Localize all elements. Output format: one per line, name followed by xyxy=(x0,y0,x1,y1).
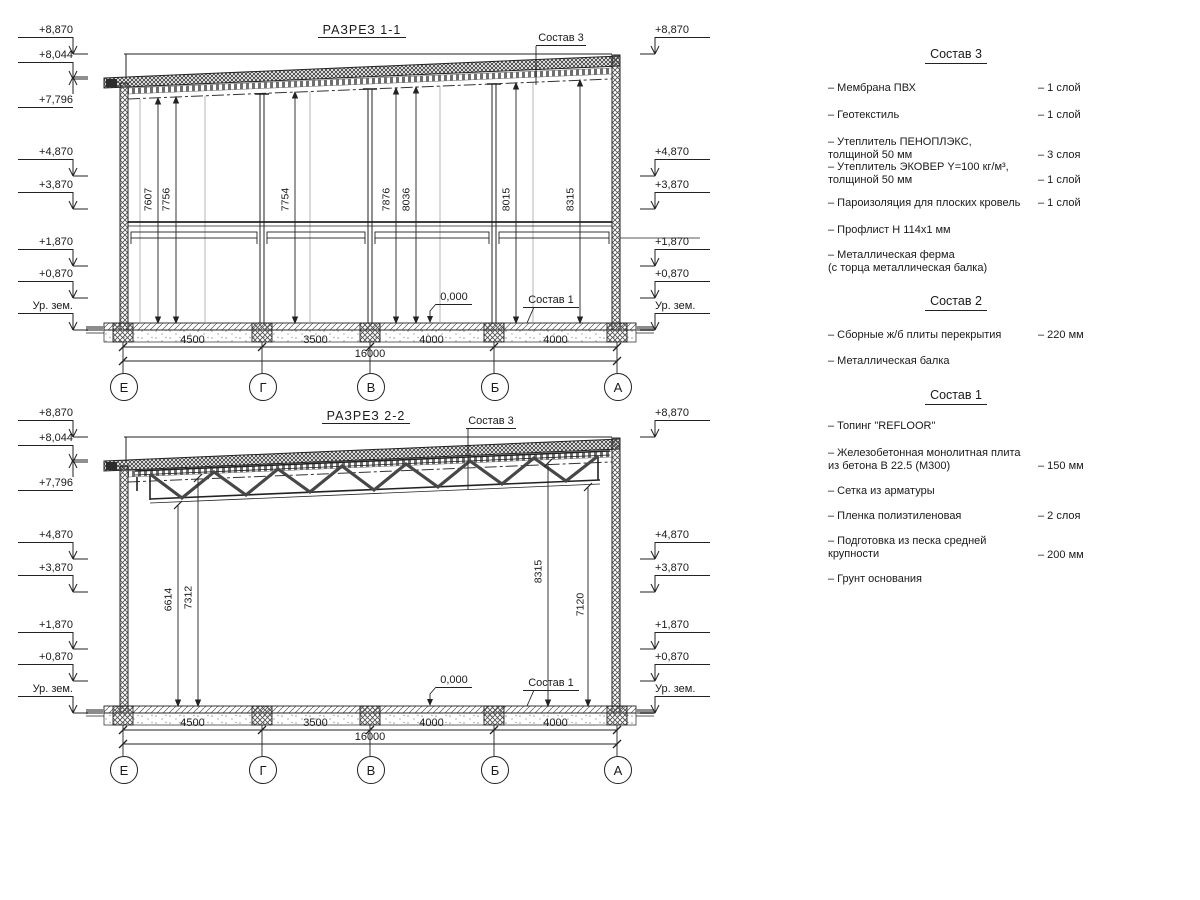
axis-letter: Е xyxy=(120,763,129,778)
elevation-mark: +3,870 xyxy=(18,562,73,576)
elevation-mark: +8,870 xyxy=(655,407,710,421)
legend-item-value: – 150 мм xyxy=(1038,460,1138,472)
elevation-mark: +8,870 xyxy=(655,24,710,38)
total-dim: 16000 xyxy=(342,731,398,743)
elevation-mark: +4,870 xyxy=(18,146,73,160)
axis-letter: Е xyxy=(120,380,129,395)
span-dim: 4500 xyxy=(165,717,220,729)
span-dim: 4000 xyxy=(528,717,583,729)
ground-level-label: Ур. зем. xyxy=(18,683,73,697)
axis-bubble-a: А xyxy=(604,373,632,401)
legend-item-value: – 200 мм xyxy=(1038,549,1138,561)
legend-item-value: – 1 слой xyxy=(1038,82,1138,94)
legend-item: – Геотекстиль xyxy=(828,109,1036,122)
legend-item-value: – 2 слоя xyxy=(1038,510,1138,522)
span-dim: 3500 xyxy=(288,334,343,346)
elevation-mark: +4,870 xyxy=(18,529,73,543)
axis-bubble-e: Е xyxy=(110,756,138,784)
legend-sostav3-title: Состав 3 xyxy=(925,47,987,64)
elevation-mark: +1,870 xyxy=(18,236,73,250)
legend-item: – Сетка из арматуры xyxy=(828,485,1036,498)
elevation-mark: +1,870 xyxy=(655,619,710,633)
legend-item: – Сборные ж/б плиты перекрытия xyxy=(828,329,1036,342)
elevation-mark: +0,870 xyxy=(18,651,73,665)
elevation-mark: +0,870 xyxy=(655,268,710,282)
axis-letter: А xyxy=(614,380,623,395)
legend-item: – Подготовка из песка средней крупности xyxy=(828,535,1036,560)
span-dim: 3500 xyxy=(288,717,343,729)
elevation-mark: +8,044 xyxy=(18,49,73,63)
elevation-mark: +1,870 xyxy=(655,236,710,250)
sostav3-leader-label-s2: Состав 3 xyxy=(466,415,516,429)
height-dim: 7120 xyxy=(575,575,588,635)
legend-item: – Металлическая ферма (с торца металличе… xyxy=(828,249,1036,274)
height-dim: 8315 xyxy=(533,542,546,602)
elevation-mark: +4,870 xyxy=(655,529,710,543)
axis-letter: Г xyxy=(259,380,266,395)
zero-level-label-s1: 0,000 xyxy=(436,291,472,305)
axis-letter: В xyxy=(367,380,376,395)
legend-item-value: – 220 мм xyxy=(1038,329,1138,341)
axis-bubble-a: А xyxy=(604,756,632,784)
sostav1-leader-label-s2: Состав 1 xyxy=(523,677,579,691)
height-dim: 7756 xyxy=(161,170,174,230)
height-dim: 7876 xyxy=(381,170,394,230)
legend-item-value: – 3 слоя xyxy=(1038,149,1138,161)
elevation-mark: +0,870 xyxy=(655,651,710,665)
section-2-title: РАЗРЕЗ 2-2 xyxy=(322,410,410,424)
axis-letter: А xyxy=(614,763,623,778)
elevation-mark: +4,870 xyxy=(655,146,710,160)
axis-letter: Б xyxy=(491,763,500,778)
section-1-title: РАЗРЕЗ 1-1 xyxy=(318,24,406,38)
elevation-mark: +3,870 xyxy=(655,179,710,193)
height-dim: 6614 xyxy=(163,570,176,630)
legend-item: – Утеплитель ПЕНОПЛЭКС, толщиной 50 мм xyxy=(828,136,1036,161)
sostav3-leader-label-s1: Состав 3 xyxy=(536,32,586,46)
legend-item: – Железобетонная монолитная плита из бет… xyxy=(828,447,1036,472)
height-dim: 7312 xyxy=(183,568,196,628)
elevation-mark: +3,870 xyxy=(655,562,710,576)
legend-item-value: – 1 слой xyxy=(1038,174,1138,186)
axis-letter: Б xyxy=(491,380,500,395)
legend-item: – Профлист Н 114х1 мм xyxy=(828,224,1036,237)
axis-bubble-b: Б xyxy=(481,373,509,401)
legend-item: – Пленка полиэтиленовая xyxy=(828,510,1036,523)
axis-letter: В xyxy=(367,763,376,778)
sostav1-leader-label-s1: Состав 1 xyxy=(523,294,579,308)
axis-bubble-v: В xyxy=(357,756,385,784)
legend-item-value: – 1 слой xyxy=(1038,197,1138,209)
legend-item: – Мембрана ПВХ xyxy=(828,82,1036,95)
legend-item: – Утеплитель ЭКОВЕР Y=100 кг/м³, толщино… xyxy=(828,161,1036,186)
elevation-mark: +7,796 xyxy=(18,94,73,108)
elevation-mark: +8,870 xyxy=(18,24,73,38)
span-dim: 4000 xyxy=(404,717,459,729)
legend-item: – Металлическая балка xyxy=(828,355,1036,368)
axis-letter: Г xyxy=(259,763,266,778)
height-dim: 8315 xyxy=(565,170,578,230)
drawing-sheet: РАЗРЕЗ 1-1 Состав 3 0,000 Состав 1 +8,87… xyxy=(0,0,1200,900)
total-dim: 16000 xyxy=(342,348,398,360)
axis-bubble-g: Г xyxy=(249,756,277,784)
axis-bubble-v: В xyxy=(357,373,385,401)
elevation-mark: +8,044 xyxy=(18,432,73,446)
axis-bubble-b: Б xyxy=(481,756,509,784)
legend-sostav2-title: Состав 2 xyxy=(925,294,987,311)
span-dim: 4000 xyxy=(404,334,459,346)
height-dim: 8036 xyxy=(401,170,414,230)
ground-level-label: Ур. зем. xyxy=(655,300,710,314)
height-dim: 7754 xyxy=(280,170,293,230)
legend-item: – Пароизоляция для плоских кровель xyxy=(828,197,1036,210)
legend-sostav1-title: Состав 1 xyxy=(925,388,987,405)
legend-item: – Топинг "REFLOOR" xyxy=(828,420,1036,433)
elevation-mark: +8,870 xyxy=(18,407,73,421)
ground-level-label: Ур. зем. xyxy=(18,300,73,314)
legend-item: – Грунт основания xyxy=(828,573,1036,586)
elevation-mark: +7,796 xyxy=(18,477,73,491)
axis-bubble-g: Г xyxy=(249,373,277,401)
elevation-mark: +0,870 xyxy=(18,268,73,282)
legend-item-value: – 1 слой xyxy=(1038,109,1138,121)
height-dim: 8015 xyxy=(501,170,514,230)
span-dim: 4000 xyxy=(528,334,583,346)
height-dim: 7607 xyxy=(143,170,156,230)
zero-level-label-s2: 0,000 xyxy=(436,674,472,688)
span-dim: 4500 xyxy=(165,334,220,346)
elevation-mark: +1,870 xyxy=(18,619,73,633)
ground-level-label: Ур. зем. xyxy=(655,683,710,697)
axis-bubble-e: Е xyxy=(110,373,138,401)
elevation-mark: +3,870 xyxy=(18,179,73,193)
